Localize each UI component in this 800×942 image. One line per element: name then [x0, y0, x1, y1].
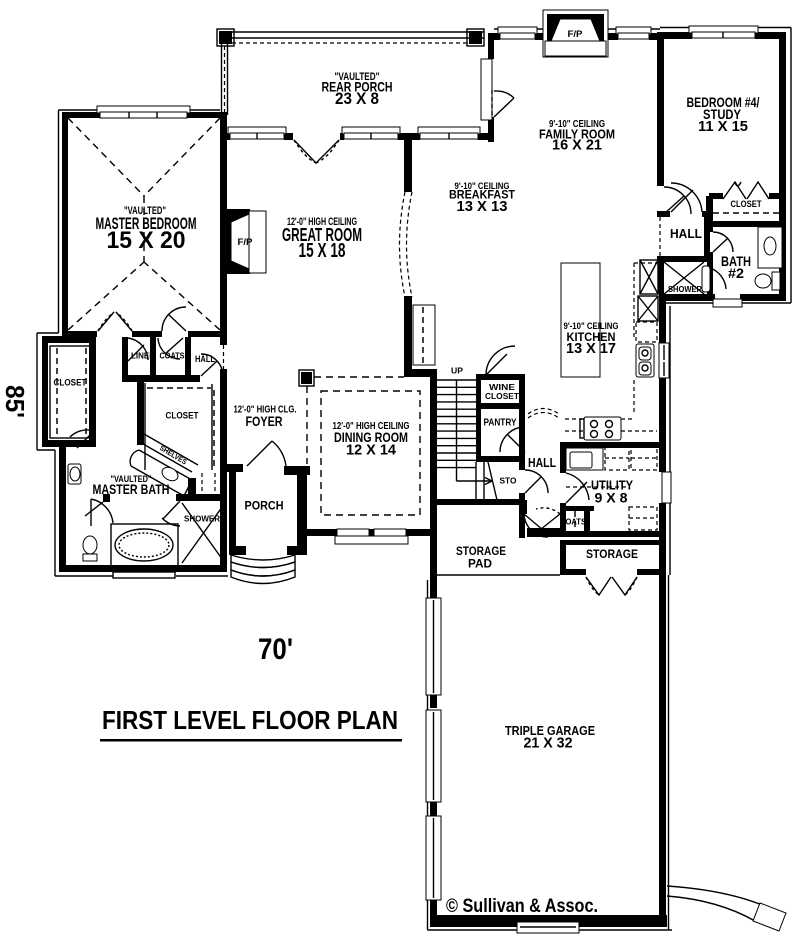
svg-text:SHOWER: SHOWER — [184, 515, 220, 524]
svg-text:16 X 21: 16 X 21 — [552, 137, 602, 154]
svg-text:9 X 8: 9 X 8 — [595, 490, 628, 506]
svg-text:STORAGE: STORAGE — [586, 547, 638, 561]
svg-text:13 X 13: 13 X 13 — [457, 198, 508, 215]
svg-text:CLOSET: CLOSET — [485, 391, 520, 401]
svg-text:HALL: HALL — [670, 226, 702, 241]
svg-text:COATS: COATS — [160, 352, 186, 361]
svg-text:SHOWER: SHOWER — [668, 285, 702, 294]
svg-text:UP: UP — [451, 366, 463, 376]
svg-text:21 X 32: 21 X 32 — [524, 735, 573, 752]
svg-text:COATS: COATS — [560, 518, 587, 527]
svg-text:FOYER: FOYER — [246, 413, 283, 429]
svg-text:HALL: HALL — [195, 354, 215, 364]
svg-text:© Sullivan & Assoc.: © Sullivan & Assoc. — [446, 896, 598, 917]
svg-text:23 X 8: 23 X 8 — [335, 89, 379, 108]
svg-text:#2: #2 — [728, 265, 744, 281]
svg-text:85': 85' — [0, 385, 30, 418]
svg-text:PORCH: PORCH — [245, 499, 284, 513]
svg-text:13 X 17: 13 X 17 — [566, 340, 616, 357]
svg-text:STO: STO — [500, 476, 517, 486]
svg-text:CLOSET: CLOSET — [166, 411, 199, 421]
svg-text:F/P: F/P — [568, 29, 583, 39]
svg-text:PANTRY: PANTRY — [484, 418, 517, 429]
svg-text:12 X 14: 12 X 14 — [346, 442, 397, 459]
svg-text:LINEN: LINEN — [131, 352, 155, 361]
svg-text:MASTER BATH: MASTER BATH — [93, 481, 170, 497]
svg-text:15 X 18: 15 X 18 — [299, 240, 346, 262]
svg-text:PAD: PAD — [468, 557, 492, 571]
svg-text:CLOSET: CLOSET — [54, 378, 87, 388]
svg-text:11 X 15: 11 X 15 — [698, 118, 748, 135]
svg-text:FIRST LEVEL FLOOR PLAN: FIRST LEVEL FLOOR PLAN — [102, 705, 398, 735]
svg-text:70': 70' — [258, 633, 293, 666]
svg-text:HALL: HALL — [528, 455, 556, 470]
svg-text:CLOSET: CLOSET — [731, 199, 762, 209]
svg-text:15 X 20: 15 X 20 — [107, 227, 186, 254]
svg-text:F/P: F/P — [238, 237, 253, 247]
